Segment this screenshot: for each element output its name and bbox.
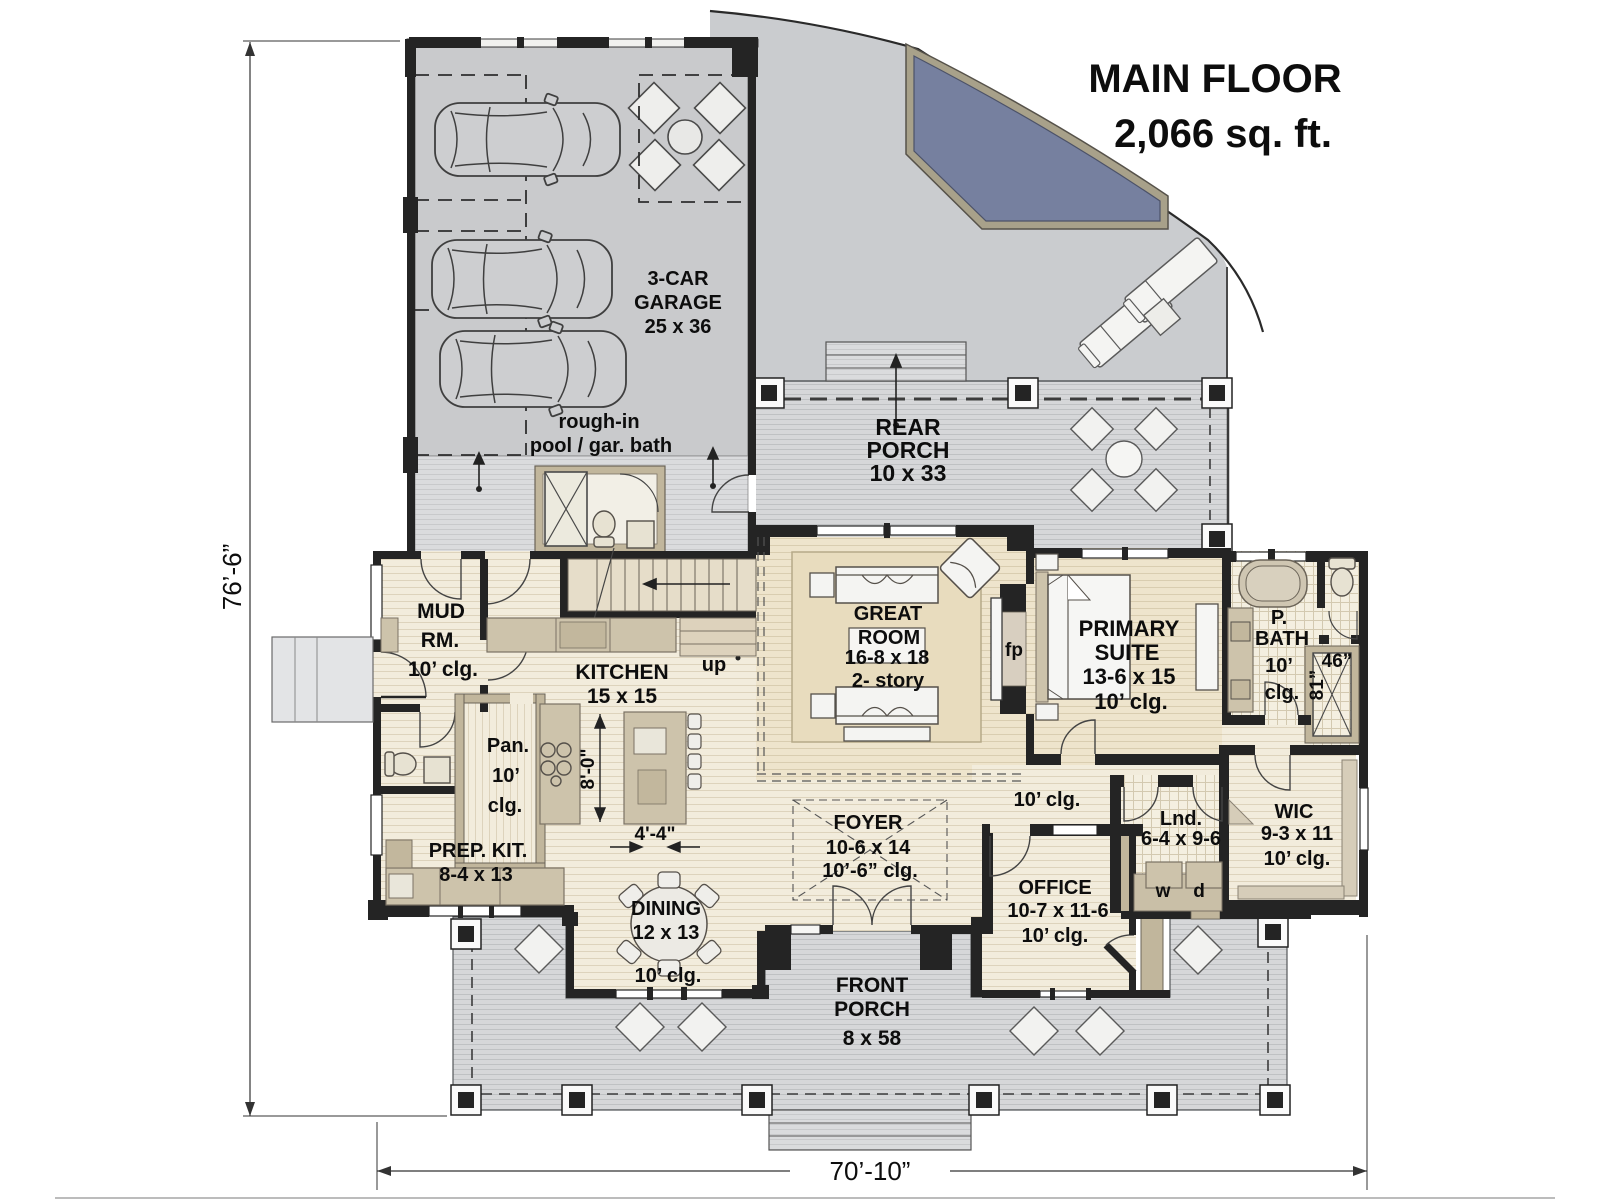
svg-text:KITCHEN: KITCHEN bbox=[575, 661, 668, 684]
svg-text:PORCH: PORCH bbox=[834, 998, 910, 1021]
svg-text:70’-10”: 70’-10” bbox=[830, 1156, 911, 1186]
svg-text:clg.: clg. bbox=[488, 795, 522, 817]
svg-text:10’ clg.: 10’ clg. bbox=[1014, 789, 1081, 811]
svg-text:10’-6” clg.: 10’-6” clg. bbox=[822, 860, 918, 882]
svg-text:clg.: clg. bbox=[1265, 682, 1299, 704]
svg-text:SUITE: SUITE bbox=[1095, 640, 1160, 665]
svg-text:81”: 81” bbox=[1307, 670, 1328, 701]
svg-text:2- story: 2- story bbox=[852, 670, 925, 692]
svg-text:10’ clg.: 10’ clg. bbox=[1264, 848, 1331, 870]
svg-text:PRIMARY: PRIMARY bbox=[1079, 616, 1180, 641]
svg-text:76’-6”: 76’-6” bbox=[217, 544, 247, 610]
svg-text:FOYER: FOYER bbox=[834, 812, 903, 834]
svg-text:GARAGE: GARAGE bbox=[634, 292, 722, 314]
svg-text:RM.: RM. bbox=[421, 629, 460, 652]
svg-text:10-6 x 14: 10-6 x 14 bbox=[826, 837, 911, 859]
svg-text:FRONT: FRONT bbox=[836, 974, 908, 997]
svg-text:10’ clg.: 10’ clg. bbox=[1094, 689, 1167, 714]
svg-text:4'-4": 4'-4" bbox=[635, 824, 676, 845]
svg-text:up: up bbox=[702, 654, 726, 676]
svg-text:15 x 15: 15 x 15 bbox=[587, 685, 657, 708]
svg-text:d: d bbox=[1193, 881, 1205, 902]
svg-text:OFFICE: OFFICE bbox=[1018, 877, 1091, 899]
svg-text:9-3 x 11: 9-3 x 11 bbox=[1261, 823, 1333, 845]
svg-text:10’: 10’ bbox=[492, 765, 520, 787]
svg-text:8'-0": 8'-0" bbox=[578, 749, 599, 790]
svg-text:2,066 sq. ft.: 2,066 sq. ft. bbox=[1114, 112, 1332, 156]
svg-text:3-CAR: 3-CAR bbox=[647, 268, 709, 290]
svg-text:MAIN FLOOR: MAIN FLOOR bbox=[1088, 57, 1341, 101]
svg-text:MUD: MUD bbox=[417, 600, 465, 623]
svg-text:DINING: DINING bbox=[631, 898, 701, 920]
svg-text:PREP. KIT.: PREP. KIT. bbox=[429, 840, 528, 862]
svg-text:P.: P. bbox=[1271, 607, 1287, 629]
svg-text:BATH: BATH bbox=[1255, 628, 1309, 650]
svg-text:GREAT: GREAT bbox=[854, 603, 923, 625]
svg-text:rough-in: rough-in bbox=[558, 411, 639, 433]
svg-text:8-4 x 13: 8-4 x 13 bbox=[439, 864, 512, 886]
svg-text:10’ clg.: 10’ clg. bbox=[408, 658, 478, 681]
svg-text:w: w bbox=[1155, 881, 1171, 902]
svg-text:fp: fp bbox=[1005, 640, 1023, 661]
svg-text:10 x 33: 10 x 33 bbox=[870, 460, 947, 486]
svg-text:Pan.: Pan. bbox=[487, 735, 529, 757]
svg-text:10’ clg.: 10’ clg. bbox=[635, 965, 702, 987]
svg-text:10’: 10’ bbox=[1265, 655, 1293, 677]
svg-text:6-4 x 9-6: 6-4 x 9-6 bbox=[1141, 828, 1221, 850]
svg-text:12 x 13: 12 x 13 bbox=[633, 922, 700, 944]
svg-text:8 x 58: 8 x 58 bbox=[843, 1027, 902, 1050]
svg-text:13-6 x 15: 13-6 x 15 bbox=[1083, 664, 1176, 689]
svg-text:10’ clg.: 10’ clg. bbox=[1022, 925, 1089, 947]
svg-text:16-8 x 18: 16-8 x 18 bbox=[845, 647, 930, 669]
svg-text:Lnd.: Lnd. bbox=[1160, 808, 1202, 830]
svg-text:pool / gar. bath: pool / gar. bath bbox=[530, 435, 672, 457]
svg-text:10-7 x 11-6: 10-7 x 11-6 bbox=[1007, 900, 1108, 922]
svg-text:WIC: WIC bbox=[1275, 801, 1314, 823]
svg-text:25 x 36: 25 x 36 bbox=[645, 316, 712, 338]
svg-text:46”: 46” bbox=[1322, 651, 1353, 672]
svg-text:ROOM: ROOM bbox=[858, 627, 920, 649]
